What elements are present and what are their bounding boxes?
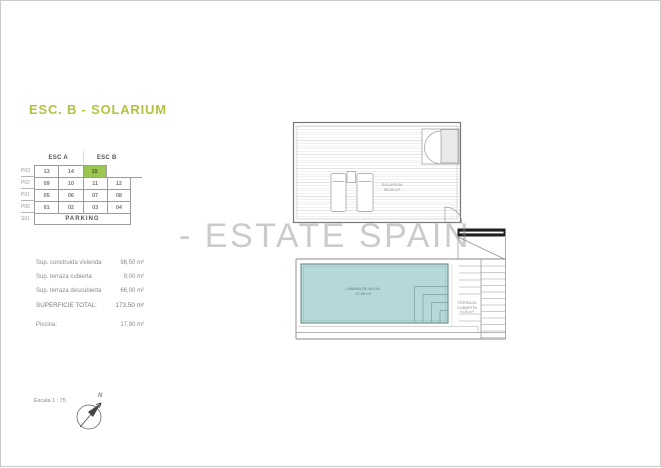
lounger-2 (357, 174, 373, 212)
side-table (347, 172, 356, 183)
compass-icon (77, 403, 101, 429)
plan-sheet-page: ESC. B - SOLARIUM ESC A ESC B P03131415P… (0, 0, 661, 467)
terrace-area: 9,00 m² (450, 310, 484, 315)
lounger-1 (331, 174, 346, 212)
solarium-area: 66,00 m² (372, 188, 412, 193)
watermark: - ESTATE SPAIN (179, 217, 471, 256)
terrace-label: TERRAZA CUBIERTA 9,00 m² (450, 301, 484, 315)
sun-loungers (331, 172, 373, 212)
pool-label: LAMINA DE AGUA 17,90 m² (338, 287, 388, 296)
solarium-label: SOLARIUM 66,00 m² (372, 183, 412, 192)
pool-area: 17,90 m² (338, 292, 388, 297)
compass-north-label: N (98, 393, 102, 399)
stair-lobby (422, 129, 459, 164)
